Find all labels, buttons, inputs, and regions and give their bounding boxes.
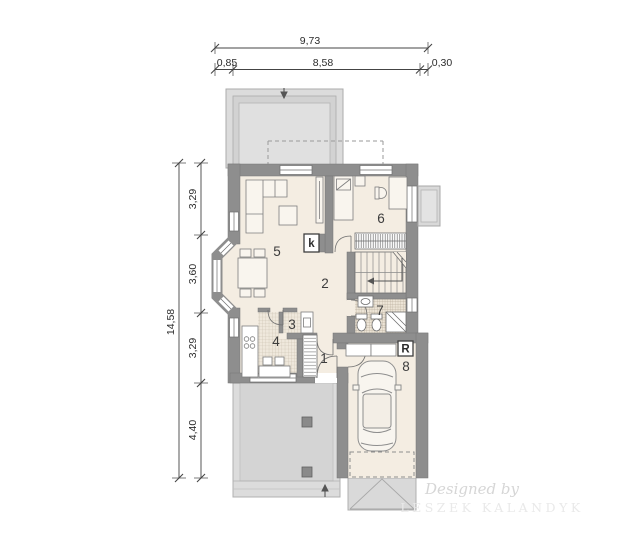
kitchen-chair [275, 357, 284, 365]
designer-watermark: Designed by LESZEK KALANDYK [400, 480, 583, 515]
car-mirror [353, 385, 359, 390]
garage-fittings [346, 344, 396, 356]
car-mirror [395, 385, 401, 390]
watermark-line2: LESZEK KALANDYK [400, 500, 583, 515]
room-label-kitchen: 4 [272, 334, 280, 349]
window-right-bathroom [407, 298, 417, 312]
wall-stairs-bathroom [347, 293, 406, 299]
room-label-garage: 8 [402, 359, 410, 374]
wall-pantry-divider [279, 312, 283, 333]
wall-kitchen-closet [297, 339, 303, 377]
dim-seg: 0,85 [217, 57, 238, 69]
desk [389, 177, 407, 209]
dining-chair [254, 249, 265, 257]
garage-shelf [346, 344, 371, 356]
room-label-dayzone: 5 [273, 244, 281, 259]
terrace-post [302, 467, 312, 477]
kitchen-chair [263, 357, 272, 365]
right-window-platform [418, 186, 440, 226]
dim-seg: 8,58 [313, 57, 334, 69]
window-left-kitchen [230, 318, 239, 337]
wall-garage-right [416, 333, 428, 478]
kitchen-counter [242, 326, 258, 377]
window-right-bedroom [407, 186, 417, 222]
dim-total-height: 14,58 [165, 309, 177, 335]
fireplace-label: k [308, 238, 315, 250]
wall-garage-top [333, 333, 428, 343]
entrance-door-gap [315, 373, 337, 383]
dim-seg: 4,40 [187, 420, 199, 441]
room-label-hall: 1 [320, 351, 328, 366]
wall-stairs-left-b [347, 316, 355, 333]
top-dimension-texts: 9,73 0,85 8,58 0,30 [217, 35, 453, 69]
dim-seg: 3,60 [187, 264, 199, 285]
wall-livingroom-bedroom [325, 176, 333, 253]
wall-garage-left-b [337, 367, 348, 478]
floor-plan-page: k R 1 2 3 4 5 6 7 8 9,73 0,85 8,58 0,30 [0, 0, 638, 556]
toilet-tank [356, 314, 367, 319]
wall-left-upper [228, 164, 240, 244]
stairs [355, 252, 406, 293]
pantry-cabinet [301, 312, 313, 333]
floor-plan-drawing: k R 1 2 3 4 5 6 7 8 9,73 0,85 8,58 0,30 [0, 0, 638, 556]
dining-table [238, 258, 267, 288]
room-label-pantry: 3 [288, 317, 296, 332]
garage-shelf [371, 344, 396, 356]
toilet [357, 319, 366, 331]
dim-seg: 0,30 [432, 57, 453, 69]
nightstand [355, 176, 365, 186]
car [353, 361, 401, 451]
wall-fireplace-side [319, 234, 325, 252]
room-label-bedroom: 6 [377, 211, 385, 226]
dining-chair [240, 289, 251, 297]
watermark-line1: Designed by [424, 480, 520, 498]
dining-chair [240, 249, 251, 257]
dim-total-width: 9,73 [300, 35, 321, 47]
dim-seg: 3,29 [187, 338, 199, 359]
coffee-table [279, 206, 297, 225]
boiler-label: R [401, 344, 410, 356]
bathroom-door-gap [347, 300, 355, 316]
lower-terrace [233, 383, 340, 497]
dim-seg: 3,29 [187, 189, 199, 210]
window-bedroom-top [360, 166, 392, 175]
room-label-bathroom: 7 [376, 303, 384, 318]
window-left-upper [230, 212, 239, 231]
left-dimension-texts: 14,58 3,29 3,60 3,29 4,40 [165, 189, 199, 441]
dining-chair [254, 289, 265, 297]
terrace-post [302, 417, 312, 427]
window-living-top [280, 166, 312, 175]
kitchen-table [259, 366, 290, 377]
bidet [372, 319, 381, 331]
room-label-living: 2 [321, 276, 329, 291]
wall-kitchen-top-b [283, 308, 297, 312]
upper-terrace [226, 88, 343, 168]
washbasin [358, 296, 373, 307]
